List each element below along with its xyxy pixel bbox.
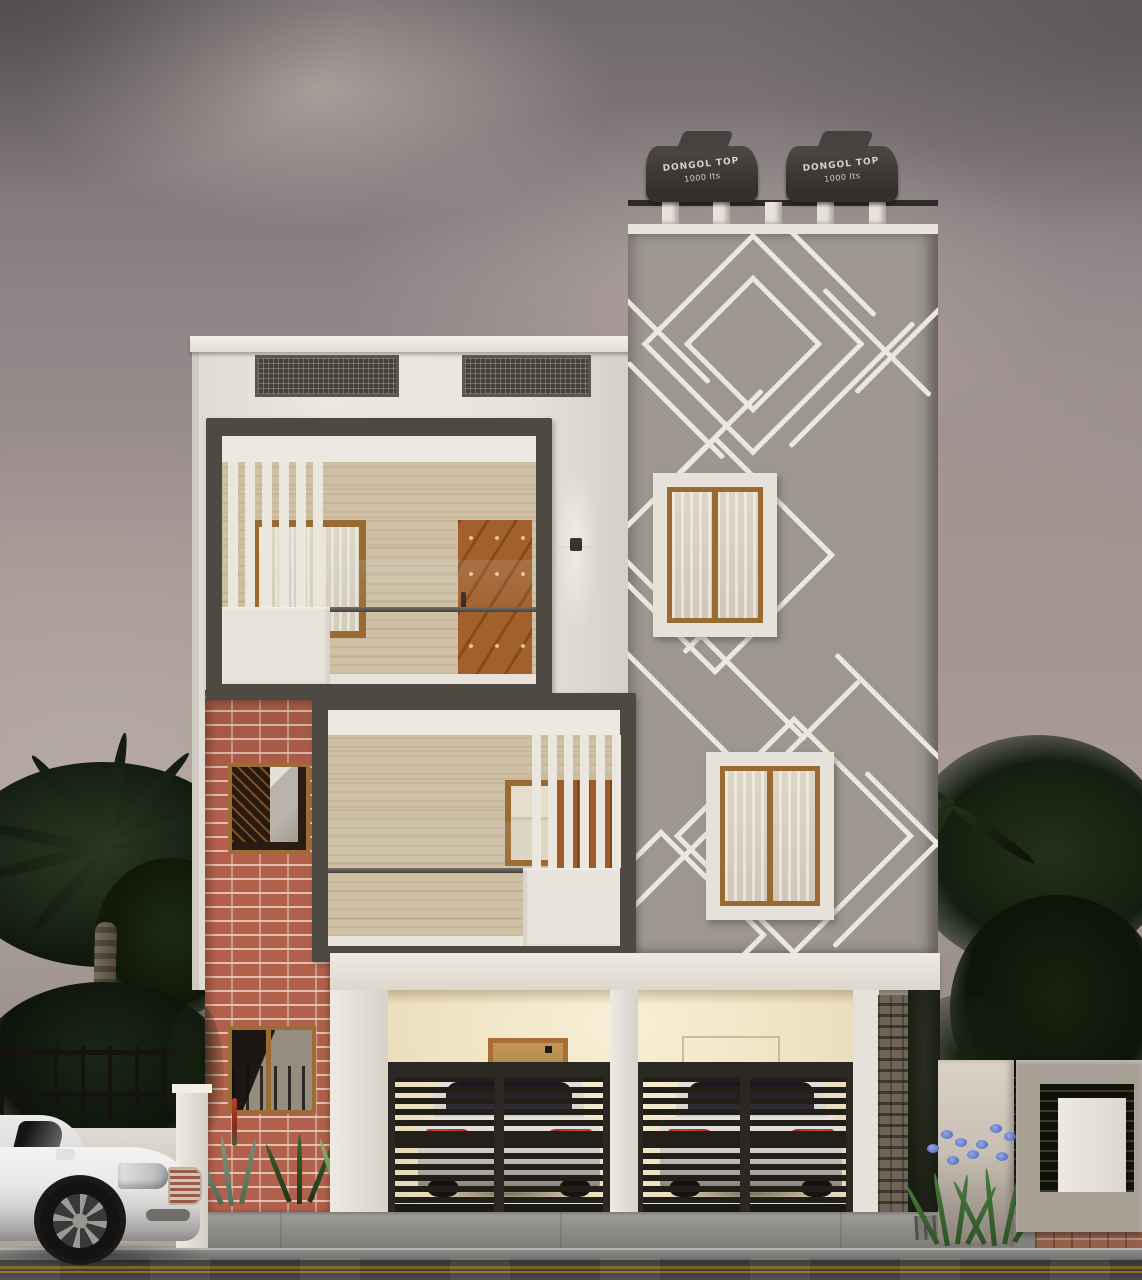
brick-window-upper bbox=[228, 763, 310, 854]
balcony-lintel bbox=[328, 710, 620, 735]
window-glass-pane bbox=[270, 767, 298, 842]
garage-gate-right bbox=[636, 1062, 853, 1215]
gate-white-panel bbox=[1058, 1098, 1126, 1192]
wall-lamp-fixture bbox=[570, 538, 582, 551]
aloe-flower-red bbox=[232, 1098, 237, 1146]
gate-stile bbox=[740, 1062, 750, 1215]
left-gate-pillar-cap bbox=[172, 1084, 212, 1093]
parapet-band bbox=[628, 224, 938, 234]
wall-lamp-glow-up bbox=[554, 466, 598, 546]
water-tank: DONGOL TOP 1000 lts bbox=[646, 146, 758, 202]
balcony-parapet bbox=[222, 607, 330, 684]
gray-feature-tower bbox=[628, 232, 938, 954]
gate-stile bbox=[846, 1062, 853, 1215]
ground-pillar-left bbox=[330, 990, 388, 1215]
window-mullion bbox=[767, 771, 773, 901]
blue-flower bbox=[1004, 1132, 1016, 1141]
balcony-interior bbox=[328, 710, 620, 946]
garage-gate-left bbox=[388, 1062, 610, 1215]
agave-leaf bbox=[297, 1134, 302, 1204]
blue-flower bbox=[927, 1144, 939, 1153]
glass-railing bbox=[330, 560, 536, 607]
water-tank-label: DONGOL TOP 1000 lts bbox=[643, 140, 760, 207]
door-closer-box bbox=[545, 1046, 552, 1053]
agave-leaf bbox=[264, 1144, 292, 1203]
wall-lamp-glow-down bbox=[554, 548, 598, 634]
concrete-gate-frame bbox=[1016, 1060, 1142, 1232]
ground-pillar-middle bbox=[610, 990, 638, 1215]
window-lattice-pane bbox=[232, 767, 270, 842]
glass-railing bbox=[328, 822, 523, 868]
balcony-lintel bbox=[222, 436, 536, 462]
upper-balcony bbox=[206, 418, 552, 700]
parapet-block bbox=[713, 202, 730, 226]
balcony-slats bbox=[228, 462, 323, 609]
parapet-block bbox=[869, 202, 886, 226]
sedan-headlight bbox=[118, 1163, 168, 1189]
parked-sedan bbox=[0, 1115, 209, 1273]
balcony-interior bbox=[222, 436, 536, 684]
window-mullion bbox=[266, 1030, 271, 1110]
facade-left-edge bbox=[192, 350, 199, 990]
balcony-sill bbox=[330, 674, 536, 684]
gate-stile bbox=[494, 1062, 504, 1215]
roof-vent bbox=[462, 355, 591, 397]
parapet-block bbox=[817, 202, 834, 226]
tower-window-lower-sash bbox=[720, 766, 820, 906]
aloe-leaf bbox=[239, 1139, 258, 1205]
roof-vent bbox=[255, 355, 399, 397]
sedan-grille bbox=[168, 1167, 202, 1205]
roof-slab bbox=[190, 336, 630, 352]
ground-floor-beam bbox=[330, 953, 940, 990]
staircase-silhouette bbox=[232, 1066, 312, 1110]
water-tank-label: DONGOL TOP 1000 lts bbox=[783, 140, 900, 207]
blue-flower bbox=[996, 1152, 1008, 1161]
sedan-bumper-slot bbox=[146, 1209, 190, 1221]
tower-window-upper bbox=[653, 473, 777, 637]
sedan-mirror bbox=[56, 1149, 76, 1160]
balcony-parapet bbox=[523, 868, 620, 946]
gate-stile bbox=[388, 1062, 395, 1215]
parapet-block bbox=[765, 202, 782, 226]
blue-flower bbox=[955, 1138, 967, 1147]
ground-wall-right bbox=[853, 990, 879, 1215]
tower-window-lower bbox=[706, 752, 834, 920]
window-mullion bbox=[712, 492, 718, 618]
brick-window-lower bbox=[228, 1026, 316, 1114]
railing-rail bbox=[330, 607, 536, 612]
balcony-sill bbox=[328, 936, 523, 946]
blue-flower bbox=[947, 1156, 959, 1165]
balcony-slats bbox=[532, 735, 621, 868]
blue-flower bbox=[990, 1124, 1002, 1133]
middle-balcony bbox=[312, 693, 636, 962]
stone-clad-pillar bbox=[878, 995, 908, 1215]
gate-stile bbox=[603, 1062, 610, 1215]
aloe-leaf bbox=[219, 1136, 234, 1206]
water-tank: DONGOL TOP 1000 lts bbox=[786, 146, 898, 202]
tower-window-upper-sash bbox=[667, 487, 763, 623]
flower-leaf bbox=[984, 1168, 997, 1246]
sedan-wheel-alloy bbox=[53, 1194, 107, 1248]
blue-flower bbox=[941, 1130, 953, 1139]
blue-flower bbox=[976, 1140, 988, 1149]
architectural-render: DONGOL TOP 1000 lts DONGOL TOP 1000 lts bbox=[0, 0, 1142, 1280]
railing-rail bbox=[328, 868, 523, 873]
